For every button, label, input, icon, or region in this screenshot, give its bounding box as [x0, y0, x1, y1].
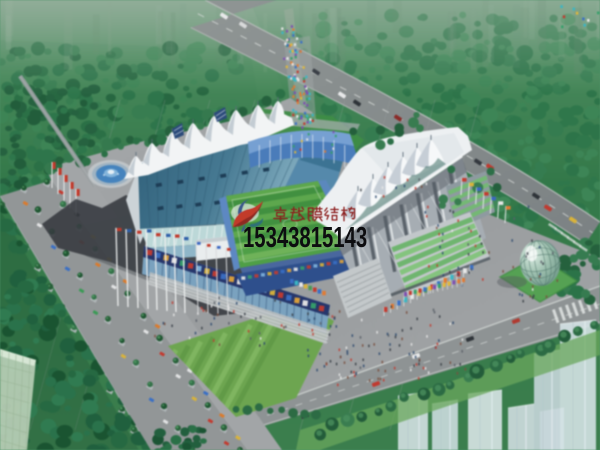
svg-text:15343815143: 15343815143	[243, 222, 367, 254]
